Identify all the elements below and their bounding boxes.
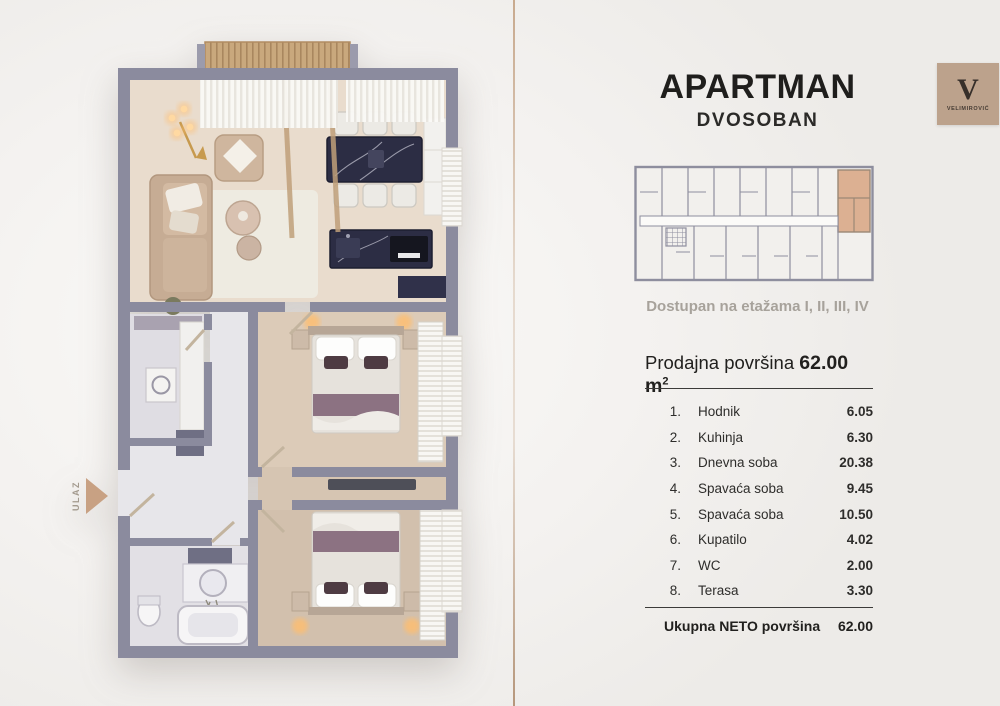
nightstand	[404, 592, 421, 611]
room-name: Spavaća soba	[681, 481, 847, 496]
sale-area-line: Prodajna površina 62.00 m2	[645, 352, 873, 398]
sale-area-label: Prodajna površina	[645, 352, 794, 373]
terrace	[197, 42, 358, 72]
room-name: Terasa	[681, 583, 847, 598]
armchair	[215, 135, 263, 181]
divider-rule-bottom	[645, 607, 873, 608]
room-area: 4.02	[847, 532, 873, 547]
highlighted-unit	[838, 170, 870, 232]
nightstand	[292, 592, 309, 611]
building-floor-key-plan	[632, 162, 880, 287]
table-row: 3. Dnevna soba 20.38	[645, 450, 873, 476]
logo-brand-name: VELIMIROVIĆ	[947, 106, 989, 112]
sale-area-value: 62.00	[799, 352, 848, 374]
nightstand	[292, 330, 309, 349]
room-name: Kupatilo	[681, 532, 847, 547]
room-area: 2.00	[847, 558, 873, 573]
entrance-arrow-icon	[86, 478, 108, 514]
room-area: 3.30	[847, 583, 873, 598]
washing-machine	[146, 368, 176, 402]
page-subtitle: DVOSOBAN	[515, 110, 1000, 132]
bed	[308, 326, 404, 433]
total-value: 62.00	[838, 618, 873, 634]
room-number: 7.	[645, 558, 681, 573]
room-name: Hodnik	[681, 404, 847, 419]
rooms-table: 1. Hodnik 6.05 2. Kuhinja 6.30 3. Dnevna…	[645, 399, 873, 604]
table-row: 5. Spavaća soba 10.50	[645, 501, 873, 527]
room-area: 9.45	[847, 481, 873, 496]
bed	[308, 512, 404, 615]
counter	[398, 276, 446, 298]
room-number: 2.	[645, 430, 681, 445]
room-area: 6.05	[847, 404, 873, 419]
room-name: Dnevna soba	[681, 455, 839, 470]
entrance-marker: ULAZ	[71, 478, 108, 514]
company-logo: V VELIMIROVIĆ	[937, 63, 999, 125]
room-number: 5.	[645, 507, 681, 522]
sale-area-unit: m	[645, 375, 662, 397]
side-table	[237, 236, 261, 260]
total-row: Ukupna NETO površina 62.00	[645, 613, 873, 639]
total-label: Ukupna NETO površina	[645, 618, 838, 634]
room-number: 6.	[645, 532, 681, 547]
dining-table	[327, 137, 422, 182]
sink	[200, 570, 226, 596]
kitchen-island	[330, 230, 432, 268]
room-number: 1.	[645, 404, 681, 419]
logo-monogram: V	[957, 76, 979, 104]
table-row: 4. Spavaća soba 9.45	[645, 476, 873, 502]
apartment-floorplan: ULAZ	[0, 0, 515, 706]
table-row: 2. Kuhinja 6.30	[645, 425, 873, 451]
corridor-rug	[328, 479, 416, 490]
page-title: APARTMAN	[515, 68, 1000, 107]
room-name: WC	[681, 558, 847, 573]
room-number: 3.	[645, 455, 681, 470]
room-number: 8.	[645, 583, 681, 598]
table-row: 6. Kupatilo 4.02	[645, 527, 873, 553]
wardrobe	[418, 322, 443, 462]
nightstand	[403, 330, 420, 349]
room-area: 10.50	[839, 507, 873, 522]
wardrobe	[420, 506, 445, 640]
table-row: 8. Terasa 3.30	[645, 578, 873, 604]
bath-cabinet	[188, 548, 232, 564]
room-area: 20.38	[839, 455, 873, 470]
room-number: 4.	[645, 481, 681, 496]
divider-rule-top	[645, 388, 873, 389]
details-panel: APARTMAN DVOSOBAN V VELIMIROVIĆ Dostupan…	[515, 0, 1000, 706]
room-name: Spavaća soba	[681, 507, 839, 522]
table-row: 1. Hodnik 6.05	[645, 399, 873, 425]
room-name: Kuhinja	[681, 430, 847, 445]
table-row: 7. WC 2.00	[645, 553, 873, 579]
entrance-label: ULAZ	[71, 481, 81, 511]
sofa	[150, 175, 212, 300]
room-area: 6.30	[847, 430, 873, 445]
brochure-page: ULAZ APARTMAN DVOSOBAN V VELIMIROVIĆ	[0, 0, 1000, 706]
availability-note: Dostupan na etažama I, II, III, IV	[515, 298, 1000, 315]
stairs	[666, 228, 686, 246]
